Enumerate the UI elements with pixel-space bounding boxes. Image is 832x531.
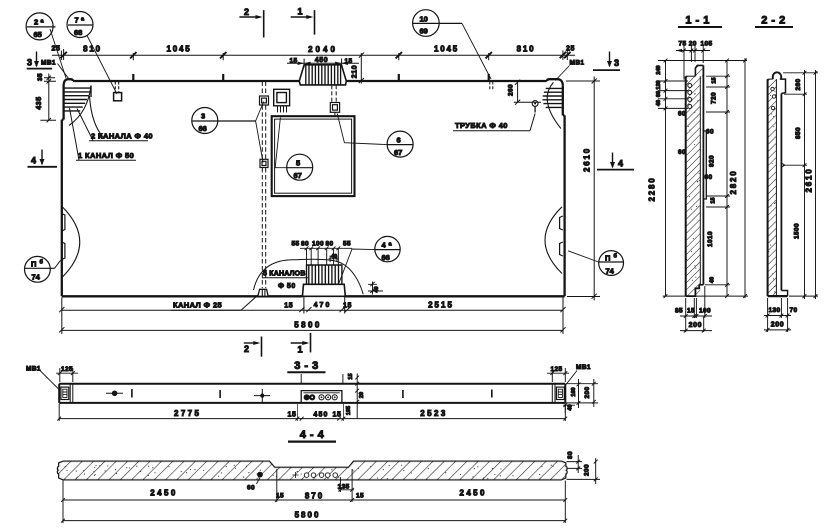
svg-text:105: 105 [346,406,352,415]
svg-text:2610: 2610 [805,168,814,193]
svg-text:3: 3 [27,58,32,68]
svg-text:П: П [31,260,36,269]
svg-text:15: 15 [288,412,297,419]
svg-text:70: 70 [789,307,797,314]
svg-text:5 КАНАЛОВ: 5 КАНАЛОВ [263,271,306,278]
svg-text:6: 6 [397,136,401,145]
svg-text:40: 40 [568,404,574,410]
svg-text:5800: 5800 [295,511,321,520]
svg-text:1500: 1500 [794,223,801,239]
svg-text:80: 80 [325,241,333,248]
svg-text:4: 4 [31,156,36,166]
svg-text:40: 40 [656,100,662,106]
svg-text:Ф 50: Ф 50 [278,283,296,290]
svg-text:2040: 2040 [308,45,338,54]
svg-text:5800: 5800 [294,320,321,329]
svg-text:60: 60 [706,129,714,136]
svg-text:1 КАНАЛ Ф 50: 1 КАНАЛ Ф 50 [78,151,134,160]
svg-text:850: 850 [795,127,802,139]
svg-text:2280: 2280 [648,177,657,202]
svg-text:55: 55 [291,241,299,248]
svg-text:1: 1 [298,7,303,17]
svg-text:1 - 1: 1 - 1 [685,15,710,27]
svg-text:15: 15 [276,493,284,500]
svg-text:60: 60 [705,174,713,181]
svg-text:15: 15 [712,77,718,83]
svg-text:130: 130 [768,307,780,314]
svg-text:80: 80 [301,241,309,248]
svg-text:130: 130 [656,80,662,89]
svg-text:МВ1: МВ1 [570,60,585,67]
svg-text:П: П [605,254,610,263]
svg-text:15: 15 [289,58,297,65]
svg-text:15: 15 [284,303,293,310]
svg-text:85: 85 [675,308,683,315]
svg-text:7: 7 [75,16,79,25]
svg-text:75: 75 [678,41,686,48]
svg-text:40: 40 [710,277,716,283]
svg-text:4: 4 [618,159,623,169]
svg-text:МВ1: МВ1 [41,60,56,67]
svg-text:20: 20 [689,41,697,48]
svg-text:200: 200 [771,322,784,329]
svg-text:ТРУБКА Ф 40: ТРУБКА Ф 40 [455,121,508,130]
svg-text:60: 60 [678,149,686,156]
svg-text:69: 69 [420,27,428,36]
svg-text:15: 15 [344,58,352,65]
svg-text:15: 15 [343,303,352,310]
svg-text:б: б [40,259,44,266]
svg-text:МВ1: МВ1 [576,364,591,371]
svg-text:15: 15 [348,373,354,379]
svg-text:2775: 2775 [174,409,201,418]
svg-text:74: 74 [32,273,41,282]
svg-text:15: 15 [687,308,695,315]
svg-text:2523: 2523 [420,409,447,418]
svg-text:200: 200 [584,386,591,398]
svg-text:67: 67 [294,171,302,180]
svg-text:5: 5 [296,159,300,168]
svg-text:720: 720 [711,92,718,104]
svg-text:КАНАЛ Ф 25: КАНАЛ Ф 25 [173,301,222,310]
svg-text:МВ1: МВ1 [26,366,41,373]
svg-text:100: 100 [699,308,711,315]
svg-text:135: 135 [338,484,350,491]
svg-text:2610: 2610 [583,147,592,172]
svg-text:74: 74 [606,267,615,276]
svg-text:2: 2 [244,7,249,17]
svg-text:470: 470 [314,302,332,309]
svg-text:1010: 1010 [707,231,714,247]
svg-text:3: 3 [201,112,205,121]
svg-text:40: 40 [374,286,380,292]
svg-text:450: 450 [313,412,328,419]
svg-text:125: 125 [550,366,562,373]
svg-text:125: 125 [61,366,73,373]
svg-text:20: 20 [359,392,365,398]
svg-text:200: 200 [583,464,590,476]
svg-text:80: 80 [567,451,574,459]
svg-text:60: 60 [247,485,255,492]
svg-text:810: 810 [517,45,536,54]
svg-text:2 КАНАЛА Ф 40: 2 КАНАЛА Ф 40 [91,132,153,141]
svg-text:100: 100 [312,241,324,248]
svg-text:2450: 2450 [150,489,177,498]
svg-text:1045: 1045 [434,45,459,54]
svg-text:870: 870 [305,491,324,500]
svg-text:260: 260 [508,84,515,96]
svg-text:66: 66 [199,124,207,133]
svg-text:1045: 1045 [167,45,192,54]
svg-text:б: б [614,253,618,260]
svg-text:15: 15 [333,412,342,419]
svg-text:35: 35 [37,73,44,81]
svg-text:15: 15 [711,197,717,203]
svg-text:15: 15 [356,493,364,500]
svg-text:68: 68 [74,28,82,37]
svg-text:55: 55 [343,241,351,248]
svg-text:105: 105 [700,41,712,48]
svg-text:2450: 2450 [459,489,486,498]
svg-text:2 - 2: 2 - 2 [761,15,786,27]
svg-text:3 - 3: 3 - 3 [294,360,319,372]
svg-text:210: 210 [352,65,359,78]
svg-text:435: 435 [36,96,43,109]
svg-text:2: 2 [244,344,249,354]
svg-text:3: 3 [614,58,619,68]
svg-text:260: 260 [795,78,802,90]
svg-text:240: 240 [656,65,662,74]
svg-text:1: 1 [298,345,303,355]
svg-text:2: 2 [34,18,38,27]
svg-text:2515: 2515 [428,301,454,310]
svg-text:450: 450 [315,57,328,64]
svg-text:60: 60 [656,91,662,97]
svg-text:25: 25 [566,46,575,53]
svg-text:920: 920 [709,155,716,167]
svg-text:40: 40 [331,254,337,260]
svg-text:2820: 2820 [729,170,738,195]
svg-text:65: 65 [34,30,42,39]
svg-text:67: 67 [394,148,402,157]
svg-text:10: 10 [420,15,428,24]
svg-text:160: 160 [571,387,577,396]
svg-text:200: 200 [689,322,702,329]
svg-text:60: 60 [678,111,686,118]
svg-text:66: 66 [382,253,390,262]
svg-text:4 - 4: 4 - 4 [300,429,325,441]
